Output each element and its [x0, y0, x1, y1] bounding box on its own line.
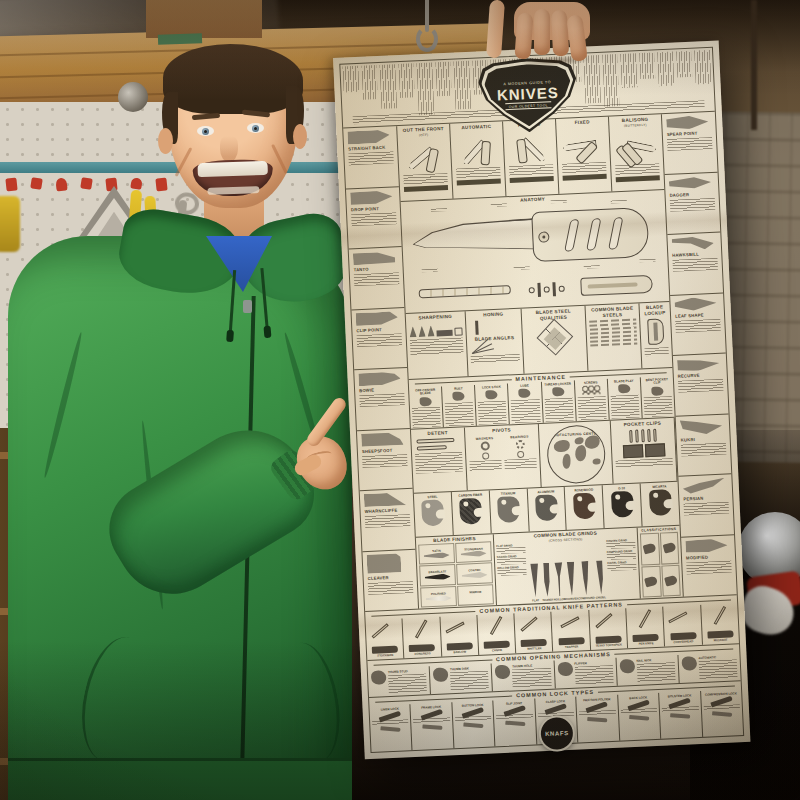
- grind-cell: CHISEL: [592, 540, 607, 600]
- material-label: MICARTA: [652, 484, 666, 489]
- grind-label: CONVEX: [566, 596, 578, 601]
- finish-cell: COATED: [456, 562, 493, 584]
- material-cell: ROSEWOOD: [565, 485, 605, 530]
- opening-cell: FLIPPER: [554, 658, 617, 689]
- blade-shape-cell: PERSIAN: [678, 474, 734, 537]
- maintenance-label: BENT POCKET CLIP: [643, 378, 671, 386]
- pattern-cell: WHITTLER: [515, 612, 554, 654]
- grind-note: FLAT GRIND: [496, 543, 525, 553]
- blade-shape-cell: SHEEPSFOOT: [357, 428, 413, 491]
- material-label: G-10: [618, 486, 625, 490]
- maintenance-icon: [618, 384, 630, 394]
- honing-section: HONING BLADE ANGLES: [466, 309, 525, 376]
- finish-label: SATIN: [432, 548, 441, 552]
- detent-text: [415, 451, 463, 473]
- honing-text: [471, 354, 520, 364]
- man-ear-left: [158, 128, 173, 154]
- maintenance-icon: [651, 386, 663, 396]
- finish-blade-sample: [461, 572, 487, 579]
- grind-note: CONVEX GRIND: [606, 538, 635, 548]
- washer-icon: [480, 441, 489, 450]
- grind-note: SCANDI GRIND: [497, 554, 526, 564]
- pattern-blade: [372, 623, 389, 638]
- world-map: MANUFACTURING CENTERS: [545, 424, 606, 485]
- bearings-text: [504, 458, 536, 469]
- lock-cell: LINER LOCK: [369, 704, 412, 752]
- steel-qualities-section: BLADE STEEL QUALITIES: [522, 306, 589, 374]
- blade-shape-label: SHEEPSFOOT: [362, 447, 407, 454]
- pattern-label: CONGRESS: [415, 652, 431, 656]
- photo-scene: A MODERN GUIDE TO KNIVES OUR OLDEST TOOL…: [0, 0, 800, 800]
- blade-silhouette: [367, 553, 402, 574]
- clip-photos: [615, 443, 673, 459]
- blade-silhouette: [347, 130, 390, 145]
- pattern-cell: CANOE: [477, 613, 516, 655]
- lock-text: [455, 715, 492, 721]
- opening-cell: THUMB DISK: [430, 663, 493, 694]
- finish-label: COATED: [468, 568, 480, 573]
- man-hair: [163, 44, 303, 114]
- common-steels-title: COMMON BLADE STEELS: [589, 306, 636, 319]
- blade-shape-cell: MODIFIED: [681, 535, 737, 597]
- common-steels-section: COMMON BLADE STEELS: [586, 303, 643, 370]
- maintenance-text: [644, 396, 673, 416]
- blade-shape-cell: SPEAR POINT: [662, 112, 718, 175]
- blade-shape-label: RECURVE: [678, 372, 723, 379]
- pattern-label: CANOE: [492, 649, 502, 652]
- anatomy-section: ANATOMY: [401, 190, 670, 314]
- maintenance-text: [412, 407, 441, 427]
- pattern-label: COPPERHEAD: [673, 640, 693, 644]
- material-cell: MICARTA: [641, 482, 680, 527]
- grind-label: SCANDI: [542, 598, 553, 602]
- blade-shape-cell: WHARNCLIFFE: [360, 489, 416, 552]
- finish-cell: POLISHED: [420, 585, 457, 607]
- blade-shape-description: [678, 379, 723, 393]
- pocket-clips-section: POCKET CLIPS: [611, 418, 678, 484]
- lock-cell: SLIP JOINT: [494, 698, 537, 746]
- blade-shape-cell: KUKRI: [676, 414, 732, 477]
- lock-text: [372, 719, 409, 725]
- man-eye-right: [247, 123, 264, 133]
- lock-cell: COMPRESSION LOCK: [701, 689, 743, 737]
- washer-icon: [482, 452, 489, 459]
- pattern-cell: BARLOW: [440, 615, 479, 657]
- blade-silhouette: [674, 296, 717, 311]
- knife-type-footer: [562, 173, 606, 180]
- sharpening-section: SHARPENING: [406, 311, 469, 379]
- blade-finishes-section: BLADE FINISHES SATIN: [416, 534, 497, 608]
- handle-silhouette: [497, 496, 520, 523]
- pattern-label: BARLOW: [453, 651, 466, 654]
- opening-text: [388, 673, 427, 694]
- maintenance-cell: THREAD LOCKER: [541, 380, 576, 422]
- man-ear-right: [293, 124, 307, 149]
- lock-label: BOLSTER LOCK: [661, 693, 698, 699]
- maintenance-icon: [552, 387, 564, 397]
- handle-silhouette: [459, 498, 482, 525]
- knife-type-footer: [457, 178, 501, 185]
- blade-shape-description: [368, 580, 413, 594]
- finish-label: STONEWASH: [464, 546, 483, 551]
- pattern-blade: [669, 611, 688, 622]
- pattern-cell: CONGRESS: [403, 617, 442, 659]
- blade-silhouette: [669, 175, 712, 190]
- lock-text: [414, 717, 451, 723]
- zipper-pull: [243, 300, 252, 313]
- sharpening-stones: [409, 321, 463, 337]
- blade-shape-label: CLIP POINT: [356, 326, 401, 333]
- pattern-blade: [595, 613, 612, 628]
- blade-lockup-title: BLADE LOCKUP: [643, 304, 667, 316]
- clips-text: [616, 458, 673, 469]
- knives-poster: A MODERN GUIDE TO KNIVES OUR OLDEST TOOL…: [333, 40, 750, 759]
- knife-type-footer: [510, 176, 554, 183]
- man-nose: [220, 136, 238, 162]
- finish-label: MIRROR: [469, 590, 481, 595]
- man-eye-left: [197, 126, 214, 136]
- classification-thumbs: [640, 532, 681, 598]
- pattern-blade: [639, 609, 651, 628]
- knife-type-cell: OUT THE FRONT (OTF): [397, 124, 453, 201]
- lock-text: [496, 714, 533, 720]
- opening-text: [636, 662, 675, 683]
- material-label: ALUMINUM: [537, 489, 554, 494]
- blade-shape-description: [667, 137, 712, 151]
- finish-cell: MIRROR: [457, 584, 494, 606]
- blade-shape-label: DAGGER: [669, 190, 714, 197]
- lockup-text: [644, 347, 668, 356]
- grind-label: CHISEL: [596, 595, 606, 599]
- lock-label: COMPRESSION LOCK: [703, 691, 740, 697]
- honing-rod: [475, 320, 479, 334]
- blade-silhouette: [682, 478, 725, 495]
- knife-drawing: [451, 126, 503, 170]
- lock-text: [703, 704, 740, 710]
- bearing-icon: [515, 440, 524, 449]
- pattern-label: WHITTLER: [527, 647, 542, 650]
- blade-shape-description: [670, 197, 715, 211]
- lock-knife-thumb: [463, 722, 483, 728]
- finish-cell: STONEWASH: [455, 541, 492, 563]
- knife-type-footer: [616, 175, 660, 182]
- pattern-blade: [561, 616, 580, 627]
- lock-knife-thumb: [670, 713, 690, 719]
- lock-cell: BOLSTER LOCK: [659, 691, 702, 739]
- blade-silhouette: [364, 492, 407, 507]
- blade-shape-label: LEAF SHAPE: [675, 311, 720, 318]
- knife-drawing: [401, 135, 449, 173]
- lock-knife-thumb: [422, 724, 442, 730]
- lock-knife-thumb: [505, 720, 525, 726]
- material-cell: STEEL: [414, 492, 454, 537]
- grind-note: CHISEL GRIND: [607, 560, 636, 570]
- maintenance-icon: [420, 397, 432, 407]
- maintenance-cell: OFF-CENTER BLADE: [409, 386, 444, 428]
- knife-type-cell: BALISONG (BUTTERFLY): [609, 114, 664, 191]
- blade-shape-label: BOWIE: [359, 386, 404, 393]
- handle-silhouette: [535, 494, 558, 521]
- handle-silhouette: [611, 491, 634, 518]
- maintenance-icon: [582, 386, 600, 396]
- handle-silhouette: [649, 489, 672, 516]
- badge-subtitle: OUR OLDEST TOOL: [505, 101, 551, 110]
- opening-cell: NAIL NICK: [616, 655, 679, 686]
- blade-shape-cell: CLIP POINT: [351, 308, 407, 371]
- handle-silhouette: [422, 499, 445, 526]
- sharpening-title: SHARPENING: [409, 313, 462, 321]
- lock-knife-thumb: [381, 726, 401, 732]
- lock-text: [579, 710, 616, 716]
- grind-cross-section: [593, 560, 607, 595]
- blade-shape-description: [357, 333, 402, 347]
- finish-blade-sample: [424, 552, 450, 559]
- maintenance-label: BLADE PLAY: [610, 379, 638, 384]
- pivots-section: PIVOTS WASHERS BEARINGS: [465, 424, 542, 490]
- angle-fan-diagram: [470, 342, 519, 354]
- lock-cell: BUTTON LOCK: [452, 700, 495, 748]
- pattern-cell: PEN KNIFE: [626, 607, 665, 649]
- lock-label: FRAME LOCK: [413, 704, 450, 710]
- material-cell: CARBON FIBER: [452, 490, 492, 535]
- finish-blade-sample: [425, 573, 451, 580]
- blade-silhouette: [350, 190, 393, 205]
- grind-label: COMPOUND: [578, 596, 595, 601]
- blade-grinds-section: COMMON BLADE GRINDS (CROSS SECTIONS) FLA…: [494, 528, 641, 605]
- honing-title: HONING: [469, 311, 518, 319]
- opening-icon: [433, 667, 449, 682]
- pattern-cell: COPPERHEAD: [664, 605, 703, 647]
- material-cell: G-10: [603, 483, 643, 528]
- pattern-cell: MUSKRAT: [701, 603, 739, 645]
- finish-blade-sample: [461, 550, 487, 557]
- lock-label: LINER LOCK: [372, 706, 409, 712]
- blade-shape-label: KUKRI: [681, 435, 726, 442]
- lock-label: BACK LOCK: [620, 695, 657, 701]
- blade-shape-label: SPEAR POINT: [667, 130, 712, 137]
- maintenance-cell: LOCK STICK: [475, 383, 510, 425]
- detent-section: DETENT: [411, 427, 468, 492]
- maintenance-label: SCREWS: [577, 381, 605, 386]
- knife-type-footer: [404, 184, 448, 191]
- grind-note: COMPOUND GRIND: [607, 549, 636, 559]
- blade-silhouette: [356, 311, 399, 326]
- opening-cell: THUMB HOLE: [492, 661, 555, 692]
- opening-icon: [619, 659, 635, 674]
- opening-cell: AUTOMATIC: [678, 652, 740, 683]
- blade-shape-description: [362, 454, 407, 468]
- blade-shape-description: [365, 514, 410, 528]
- lock-label: BUTTON LOCK: [454, 703, 491, 709]
- blade-shape-label: WHARNCLIFFE: [364, 507, 409, 514]
- pattern-label: MUSKRAT: [714, 639, 728, 642]
- grind-cross-section: [579, 561, 593, 596]
- lock-knife-thumb: [588, 716, 608, 722]
- blade-shape-label: HAWKSBILL: [672, 251, 717, 258]
- blade-shape-cell: DROP POINT: [346, 187, 402, 250]
- finish-blade-sample: [462, 593, 488, 600]
- material-label: TITANIUM: [501, 491, 516, 496]
- knafs-logo-badge: KNAFS: [538, 715, 576, 753]
- lock-label: SLIP JOINT: [496, 701, 533, 707]
- knife-type-cell: FIXED: [556, 117, 612, 194]
- maintenance-label: RUST: [444, 387, 472, 392]
- finish-cell: SATIN: [418, 543, 455, 565]
- blade-silhouette: [677, 357, 720, 372]
- clip-icons: [614, 428, 672, 444]
- blade-shape-description: [673, 258, 718, 272]
- bearing-icon: [516, 450, 523, 457]
- lock-cell: BACK LOCK: [618, 693, 661, 741]
- blade-shape-description: [681, 442, 726, 456]
- material-label: ROSEWOOD: [574, 488, 593, 493]
- pattern-cell: TEXAS TOOTHPICK: [589, 608, 628, 650]
- maintenance-icon: [452, 392, 464, 402]
- material-cell: TITANIUM: [489, 489, 529, 534]
- maintenance-cell: BENT POCKET CLIP: [641, 376, 675, 418]
- blade-angles-title: BLADE ANGLES: [470, 334, 519, 342]
- lock-text: [620, 708, 657, 714]
- blade-shape-label: MODIFIED: [686, 553, 731, 560]
- opening-icon: [557, 662, 573, 677]
- grind-label: FLAT: [532, 598, 539, 602]
- opening-icon: [371, 670, 387, 685]
- anatomy-exploded-pivot: [526, 277, 567, 303]
- blade-silhouette: [353, 250, 396, 265]
- blade-shape-cell: BOWIE: [354, 368, 410, 431]
- knife-type-description: [404, 172, 448, 184]
- bearings-label: BEARINGS: [510, 434, 529, 439]
- pattern-label: TEXAS TOOTHPICK: [596, 644, 623, 648]
- anatomy-blade: [412, 218, 536, 263]
- finish-cell: BEADBLAST: [419, 564, 456, 586]
- blade-shape-description: [684, 502, 729, 516]
- maintenance-text: [544, 397, 573, 421]
- blade-shape-cell: STRAIGHT BACK: [343, 126, 399, 189]
- pattern-blade: [713, 606, 725, 625]
- maintenance-label: LUBE: [510, 384, 538, 389]
- washers-text: [469, 460, 501, 471]
- blade-silhouette: [358, 371, 401, 386]
- maintenance-cell: SCREWS: [574, 379, 609, 421]
- blade-silhouette: [672, 236, 715, 251]
- steels-table: [589, 319, 637, 347]
- opening-icon: [495, 665, 511, 680]
- lock-text: [662, 706, 699, 712]
- lock-label: FRICTION FOLDER: [578, 697, 615, 703]
- maintenance-icon: [486, 390, 498, 400]
- material-label: CARBON FIBER: [458, 493, 482, 498]
- jacket-hem: [8, 758, 352, 800]
- pattern-blade: [445, 622, 464, 633]
- blade-shape-cell: RECURVE: [673, 353, 729, 416]
- blade-shape-description: [675, 318, 720, 332]
- anatomy-closed-knife: [580, 275, 653, 296]
- maintenance-text: [511, 399, 540, 423]
- blade-shape-description: [351, 212, 396, 226]
- blade-shape-description: [348, 151, 393, 165]
- maintenance-icon: [519, 389, 531, 399]
- maintenance-text: [610, 394, 639, 418]
- pattern-blade: [490, 616, 502, 635]
- blade-shape-cell: HAWKSBILL: [667, 233, 723, 296]
- lock-label: CLASP LOCK: [537, 699, 574, 705]
- opening-text: [512, 668, 551, 689]
- manufacturing-section: MANUFACTURING CENTERS: [539, 421, 614, 487]
- blade-shape-cell: CLEAVER: [362, 549, 418, 611]
- detent-diagram: [414, 437, 461, 451]
- qualities-web-diagram: [536, 319, 573, 356]
- pattern-label: PEN KNIFE: [639, 642, 654, 645]
- blade-shape-cell: DAGGER: [665, 172, 721, 235]
- maintenance-text: [478, 400, 507, 424]
- opening-cell: THUMB STUD: [368, 666, 431, 697]
- washers-label: WASHERS: [476, 436, 494, 441]
- finish-label: POLISHED: [431, 591, 446, 596]
- opening-text: [699, 659, 738, 680]
- blade-shape-cell: TANTO: [349, 247, 405, 310]
- maintenance-label: OFF-CENTER BLADE: [411, 388, 439, 396]
- blade-shape-description: [359, 393, 404, 407]
- opening-text: [450, 671, 489, 692]
- pattern-blade: [521, 616, 538, 631]
- blade-silhouette: [666, 115, 709, 130]
- lock-cell: FRICTION FOLDER: [576, 695, 619, 743]
- material-cell: ALUMINUM: [527, 487, 567, 532]
- blade-shape-label: PERSIAN: [683, 495, 728, 502]
- lock-cell: FRAME LOCK: [411, 702, 454, 750]
- lock-knife-thumb: [629, 715, 649, 721]
- maintenance-label: LOCK STICK: [477, 385, 505, 390]
- classifications-section: CLASSIFICATIONS: [638, 526, 683, 599]
- maintenance-text: [577, 396, 606, 420]
- blade-silhouette: [685, 538, 728, 553]
- pattern-cell: STOCKMAN: [366, 618, 405, 660]
- lockup-diagram: [647, 318, 664, 345]
- maintenance-label: THREAD LOCKER: [543, 382, 571, 387]
- blade-shape-description: [686, 560, 731, 574]
- grind-label: HOLLOW: [554, 597, 567, 602]
- knife-type-cell: AUTOMATIC: [450, 121, 506, 198]
- maintenance-cell: BLADE PLAY: [608, 377, 643, 419]
- blade-shape-description: [354, 272, 399, 286]
- badge-title: KNIVES: [497, 85, 559, 103]
- pattern-label: STOCKMAN: [377, 654, 393, 658]
- finish-blade-sample: [426, 595, 452, 602]
- sharpening-text: [410, 337, 464, 355]
- opening-text: [574, 665, 613, 686]
- pattern-cell: TRAPPER: [552, 610, 591, 652]
- pattern-label: TRAPPER: [565, 646, 578, 649]
- opening-icon: [681, 656, 697, 671]
- blade-lockup-section: BLADE LOCKUP: [639, 302, 672, 368]
- blade-shape-cell: LEAF SHAPE: [670, 293, 726, 356]
- grind-note: HOLLOW GRIND: [497, 565, 526, 575]
- blade-silhouette: [361, 432, 404, 447]
- blade-shape-label: CLEAVER: [368, 573, 413, 580]
- finish-label: BEADBLAST: [428, 570, 446, 575]
- blade-silhouette: [680, 417, 723, 435]
- handle-silhouette: [573, 493, 596, 520]
- lock-knife-thumb: [712, 711, 732, 717]
- blade-shape-label: STRAIGHT BACK: [348, 144, 393, 151]
- anatomy-side-view: [419, 285, 511, 298]
- maintenance-cell: RUST: [442, 385, 477, 427]
- pattern-blade: [415, 620, 427, 639]
- material-label: STEEL: [427, 495, 437, 499]
- blade-shape-label: DROP POINT: [351, 205, 396, 212]
- maintenance-text: [445, 402, 474, 426]
